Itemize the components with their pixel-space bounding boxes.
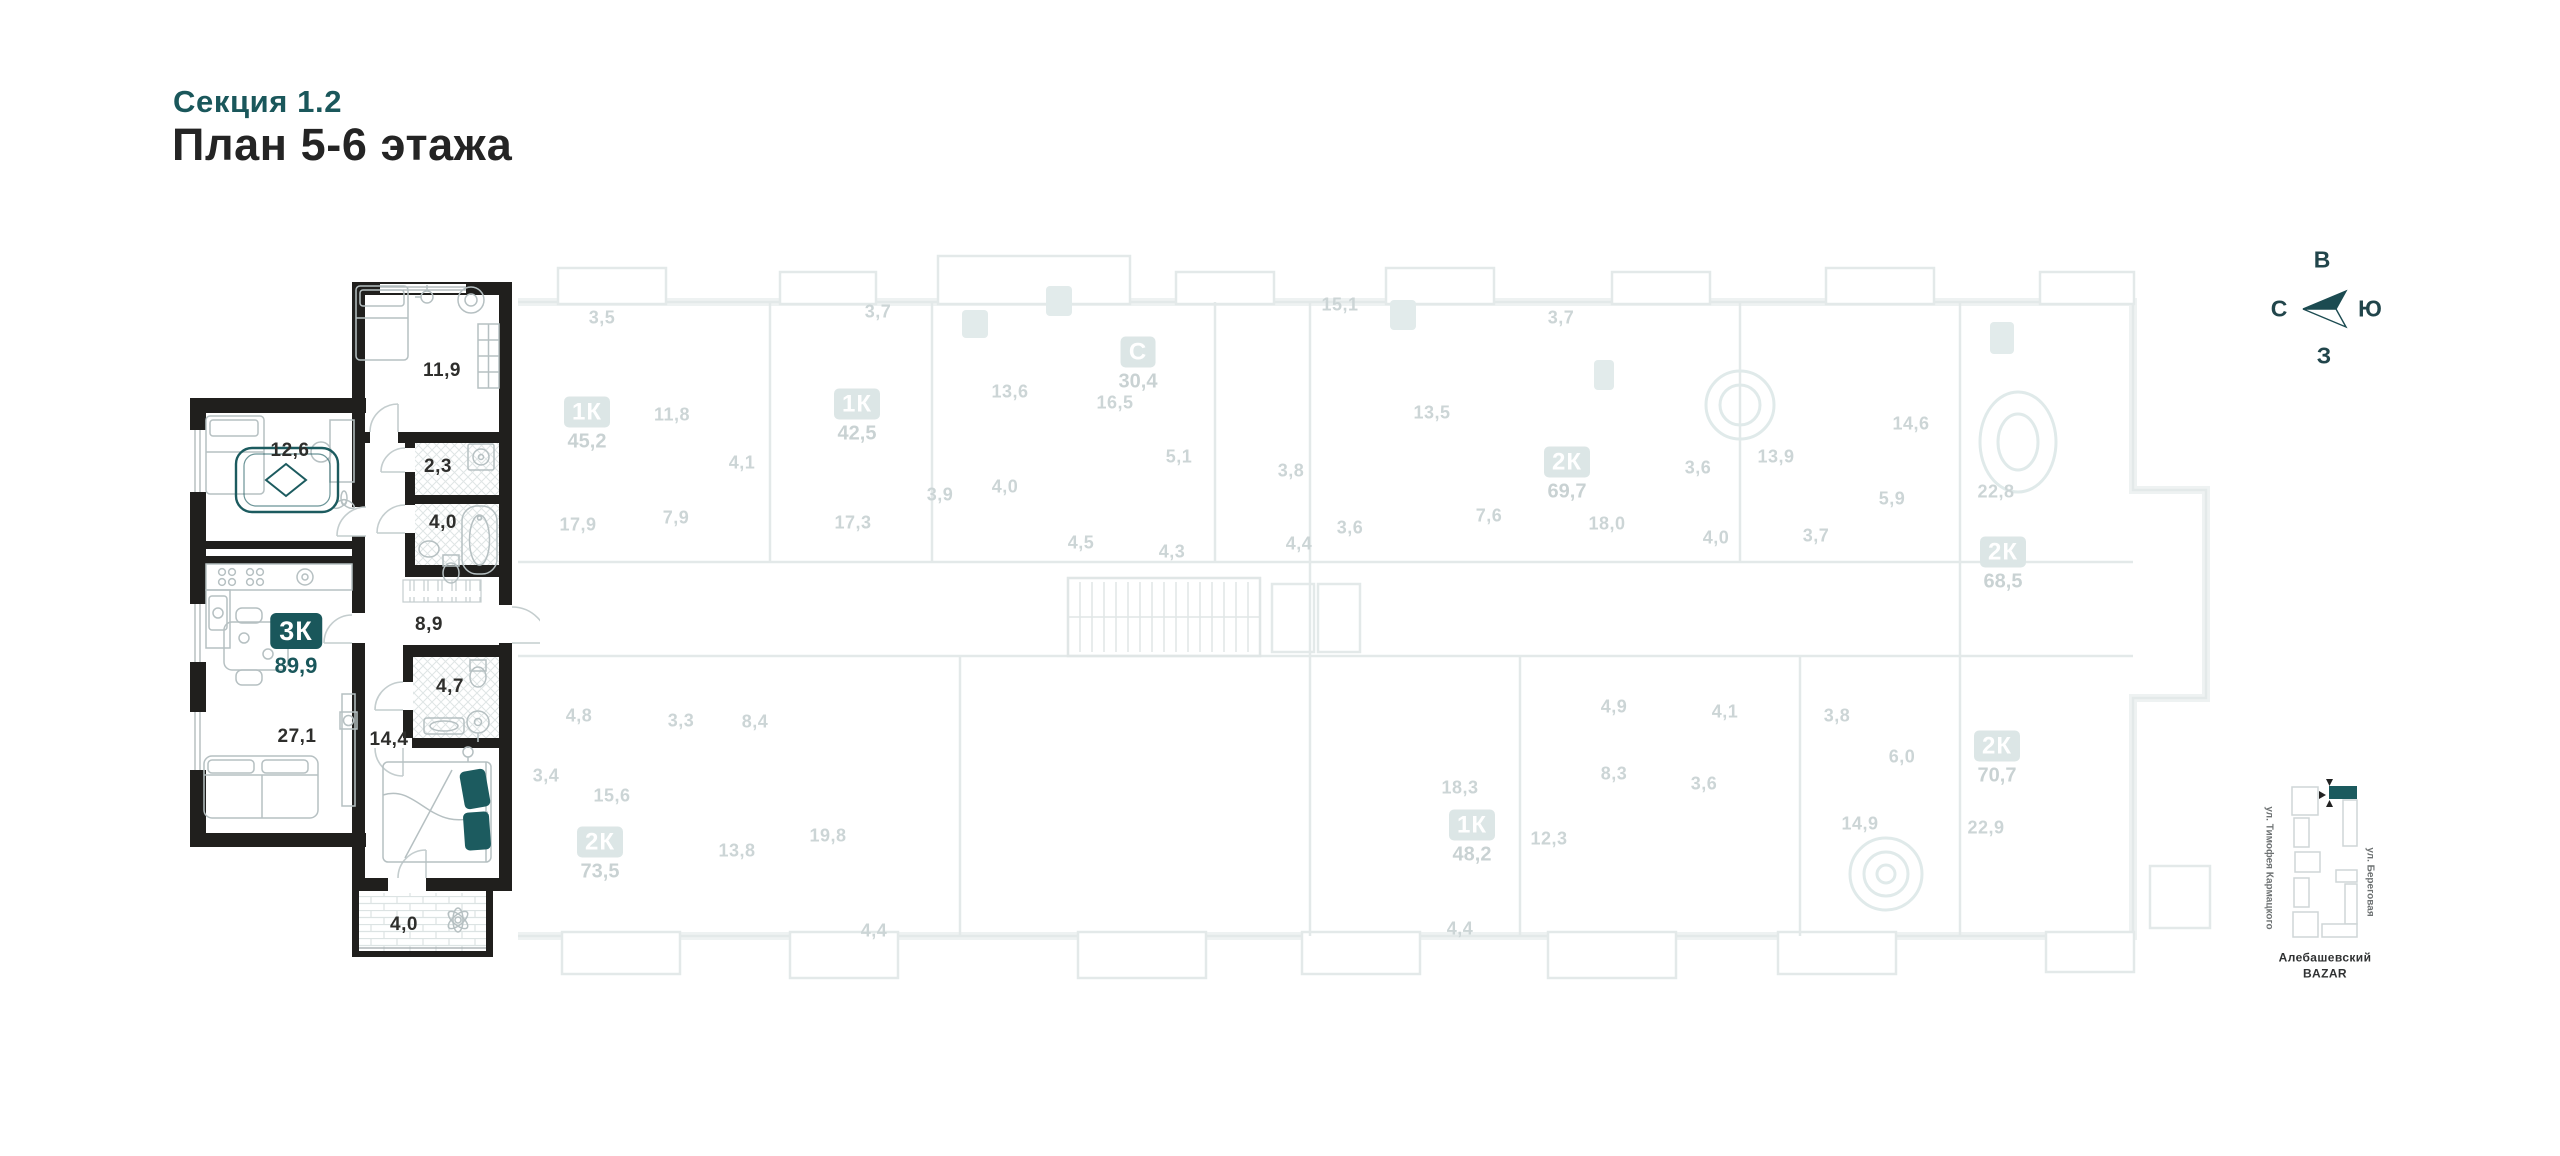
landmark-line1: Алебашевский bbox=[2279, 950, 2372, 966]
compass-direction-label: З bbox=[2317, 343, 2331, 370]
landmark-label: Алебашевский BAZAR bbox=[2279, 950, 2372, 981]
floorplan-page: Секция 1.2 План 5-6 этажа bbox=[0, 0, 2560, 1156]
page-title: План 5-6 этажа bbox=[172, 119, 512, 171]
section-title: Секция 1.2 bbox=[173, 84, 342, 120]
compass-direction-label: В bbox=[2314, 247, 2331, 274]
minimap-highlighted-section bbox=[2329, 786, 2357, 799]
apartment-type-badge: 3К 89,9 bbox=[270, 613, 322, 679]
landmark-line2: BAZAR bbox=[2279, 966, 2372, 982]
compass-direction-label: С bbox=[2271, 296, 2288, 323]
wardrobe-icon bbox=[403, 580, 481, 602]
faded-floorplan-drawing bbox=[500, 250, 2220, 1020]
compass-direction-label: Ю bbox=[2358, 296, 2382, 323]
compass-arrow-icon bbox=[2295, 286, 2355, 334]
highlighted-apartment-drawing bbox=[180, 268, 540, 968]
street-label-left: ул. Тимофея Кармацкого bbox=[2264, 806, 2275, 929]
stairs-icon bbox=[1068, 578, 1260, 656]
street-label-right: ул. Береговая bbox=[2365, 847, 2376, 916]
apartment-area: 89,9 bbox=[275, 653, 318, 679]
apartment-type: 3К bbox=[270, 613, 322, 649]
